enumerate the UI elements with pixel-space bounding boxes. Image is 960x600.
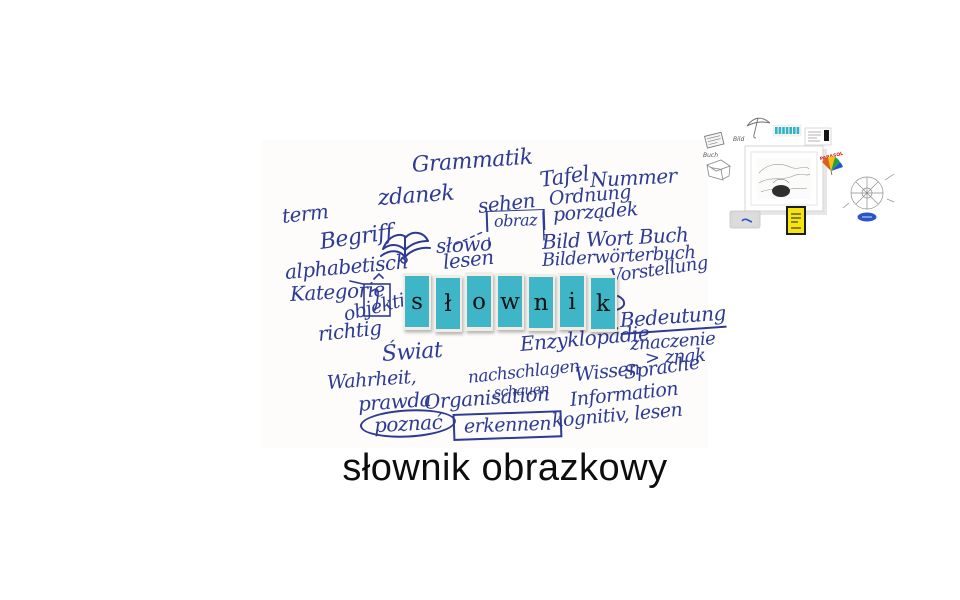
letter-tile-n: n <box>527 274 555 331</box>
umbrella-sketch <box>747 118 770 138</box>
book-sketch: Bild Buch <box>703 132 744 159</box>
handwritten-word-lesen: lesen <box>442 247 495 272</box>
tile-letter: w <box>498 276 522 327</box>
blue-oval-sticker <box>858 213 877 222</box>
tile-letter: s <box>405 276 429 327</box>
slide-canvas: GrammatikzdanektermsehenobrazTafelNummer… <box>0 0 960 600</box>
handwritten-word-erkennen: erkennen <box>453 410 563 441</box>
tile-letter: k <box>591 278 615 329</box>
bild-label: Bild <box>733 136 744 143</box>
tile-strip <box>773 125 801 136</box>
handwritten-word-obraz: obraz <box>486 209 546 232</box>
letter-tile-s: s <box>403 273 431 330</box>
tile-letter: n <box>529 277 553 328</box>
buch-label: Buch <box>703 152 718 159</box>
handwritten-word-swiat: Świat <box>381 340 443 366</box>
grey-pouch <box>730 211 760 228</box>
wheel-diagram-sketch <box>843 174 894 209</box>
tile-letter: i <box>560 276 584 327</box>
letter-tile-o: o <box>465 272 493 331</box>
tile-letter: ł <box>436 278 460 329</box>
letter-tile-k: k <box>589 275 617 332</box>
yellow-card <box>787 207 805 234</box>
handwritten-word-term: term <box>281 201 329 226</box>
letter-tile-i: i <box>558 273 586 330</box>
letter-tile-w: w <box>496 273 524 330</box>
tile-letter: o <box>467 276 491 327</box>
letter-tile-mark: ł <box>434 275 462 332</box>
ticket-card <box>805 128 831 145</box>
handwritten-word-richtig: richtig <box>317 317 383 344</box>
handwritten-word-zdanek: zdanek <box>377 183 455 210</box>
caption-title: słownik obrazkowy <box>342 447 667 490</box>
slownik-letter-tiles: słownik <box>403 273 617 332</box>
photo-collage: Bild Buch <box>695 103 935 238</box>
cube-sketch <box>707 160 730 180</box>
framed-picture <box>745 146 827 215</box>
